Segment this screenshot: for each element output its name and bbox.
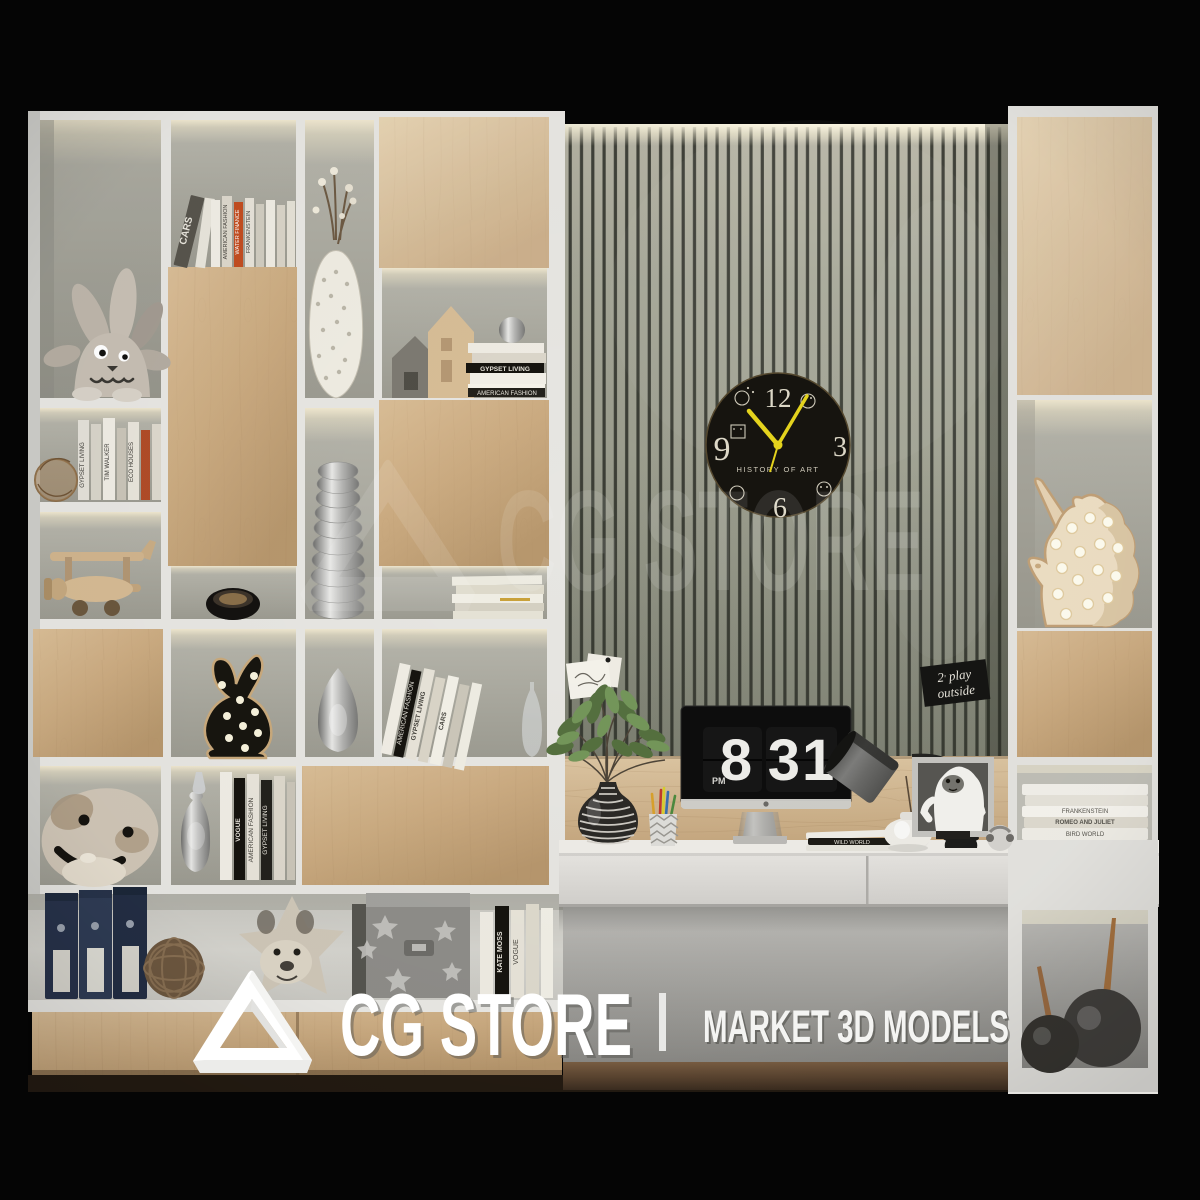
svg-text:CG STORE: CG STORE (340, 975, 632, 1074)
svg-text:CG STORE: CG STORE (497, 462, 925, 621)
svg-text:MARKET 3D MODELS: MARKET 3D MODELS (703, 1001, 1009, 1052)
